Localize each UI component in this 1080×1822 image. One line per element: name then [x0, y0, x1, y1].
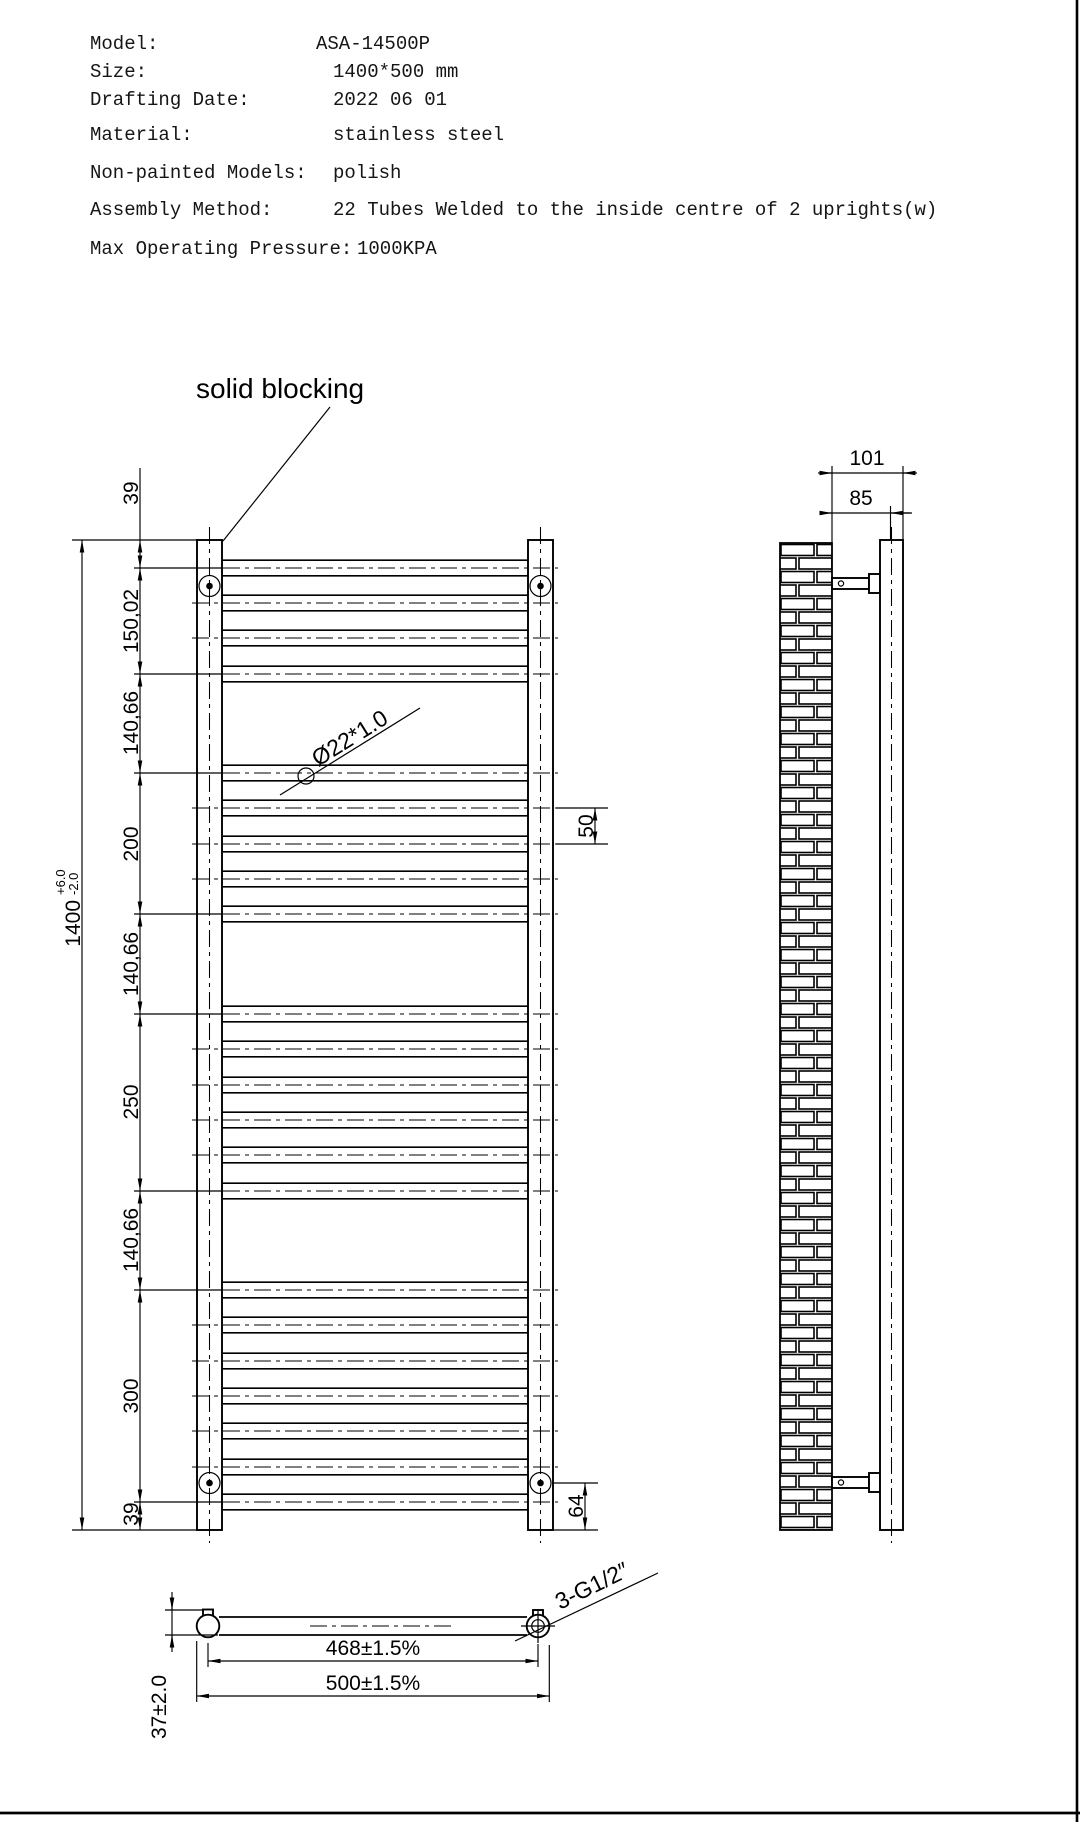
bracket-offset-dimension: 64 — [552, 1483, 598, 1530]
tube-spec-label: Ø22*1.0 — [307, 704, 392, 771]
dim-group2-span: 200 — [120, 826, 143, 861]
wall-bracket-bottom — [832, 1477, 869, 1488]
front-view: solid blocking Ø22*1.0 — [192, 373, 558, 1543]
plan-width-dimensions: 468±1.5% 500±1.5% — [197, 1637, 550, 1702]
dim-top-offset: 39 — [120, 481, 143, 504]
tube-pitch-value: 50 — [575, 814, 598, 837]
plan-wall-offset-value: 37±2.0 — [148, 1675, 171, 1739]
solid-blocking-label: solid blocking — [196, 373, 364, 404]
overall-height-tol-minus: -2.0 — [66, 873, 81, 895]
side-view: 101 85 — [780, 447, 917, 1543]
plan-centers-width-value: 468±1.5% — [326, 1637, 420, 1660]
bracket-block-bottom — [869, 1473, 880, 1492]
dim-group1-span: 150,02 — [120, 589, 143, 653]
ports-label: 3-G1/2″ — [551, 1557, 633, 1615]
dim-bottom-offset: 39 — [120, 1502, 143, 1525]
plan-view: 3-G1/2″ 468±1.5% 500±1.5% 37±2.0 — [148, 1557, 658, 1739]
dim-group4-span: 300 — [120, 1378, 143, 1413]
dim-gap1: 140,66 — [120, 691, 143, 755]
overall-height-value: 1400 — [62, 900, 85, 947]
dim-gap2: 140,66 — [120, 932, 143, 996]
solid-blocking-leader — [223, 407, 330, 541]
mount-dot — [537, 1480, 544, 1487]
depth-total-value: 101 — [849, 447, 884, 470]
wall-section — [780, 543, 832, 1530]
depth-center-value: 85 — [849, 487, 872, 510]
dim-gap3: 140,66 — [120, 1208, 143, 1272]
mount-dot — [206, 1480, 213, 1487]
drawing-page: Model: ASA-14500P Size: 1400*500 mm Draf… — [0, 0, 1080, 1822]
plan-overall-width-value: 500±1.5% — [326, 1672, 420, 1695]
depth-dimensions: 101 85 — [818, 447, 917, 543]
mount-dot — [537, 583, 544, 590]
bracket-block-top — [869, 574, 880, 593]
wall-bracket-top — [832, 578, 869, 589]
technical-drawing: solid blocking Ø22*1.0 39 150,02 140,66 … — [0, 0, 1080, 1822]
dim-group3-span: 250 — [120, 1084, 143, 1119]
overall-height-dimension: 1400 +6.0 -2.0 — [53, 540, 85, 1530]
bracket-offset-value: 64 — [565, 1494, 588, 1518]
tube-array — [192, 560, 558, 1510]
plan-left-upright — [197, 1615, 220, 1638]
mount-dot — [206, 583, 213, 590]
tube-pitch-dimension: 50 — [556, 808, 608, 844]
